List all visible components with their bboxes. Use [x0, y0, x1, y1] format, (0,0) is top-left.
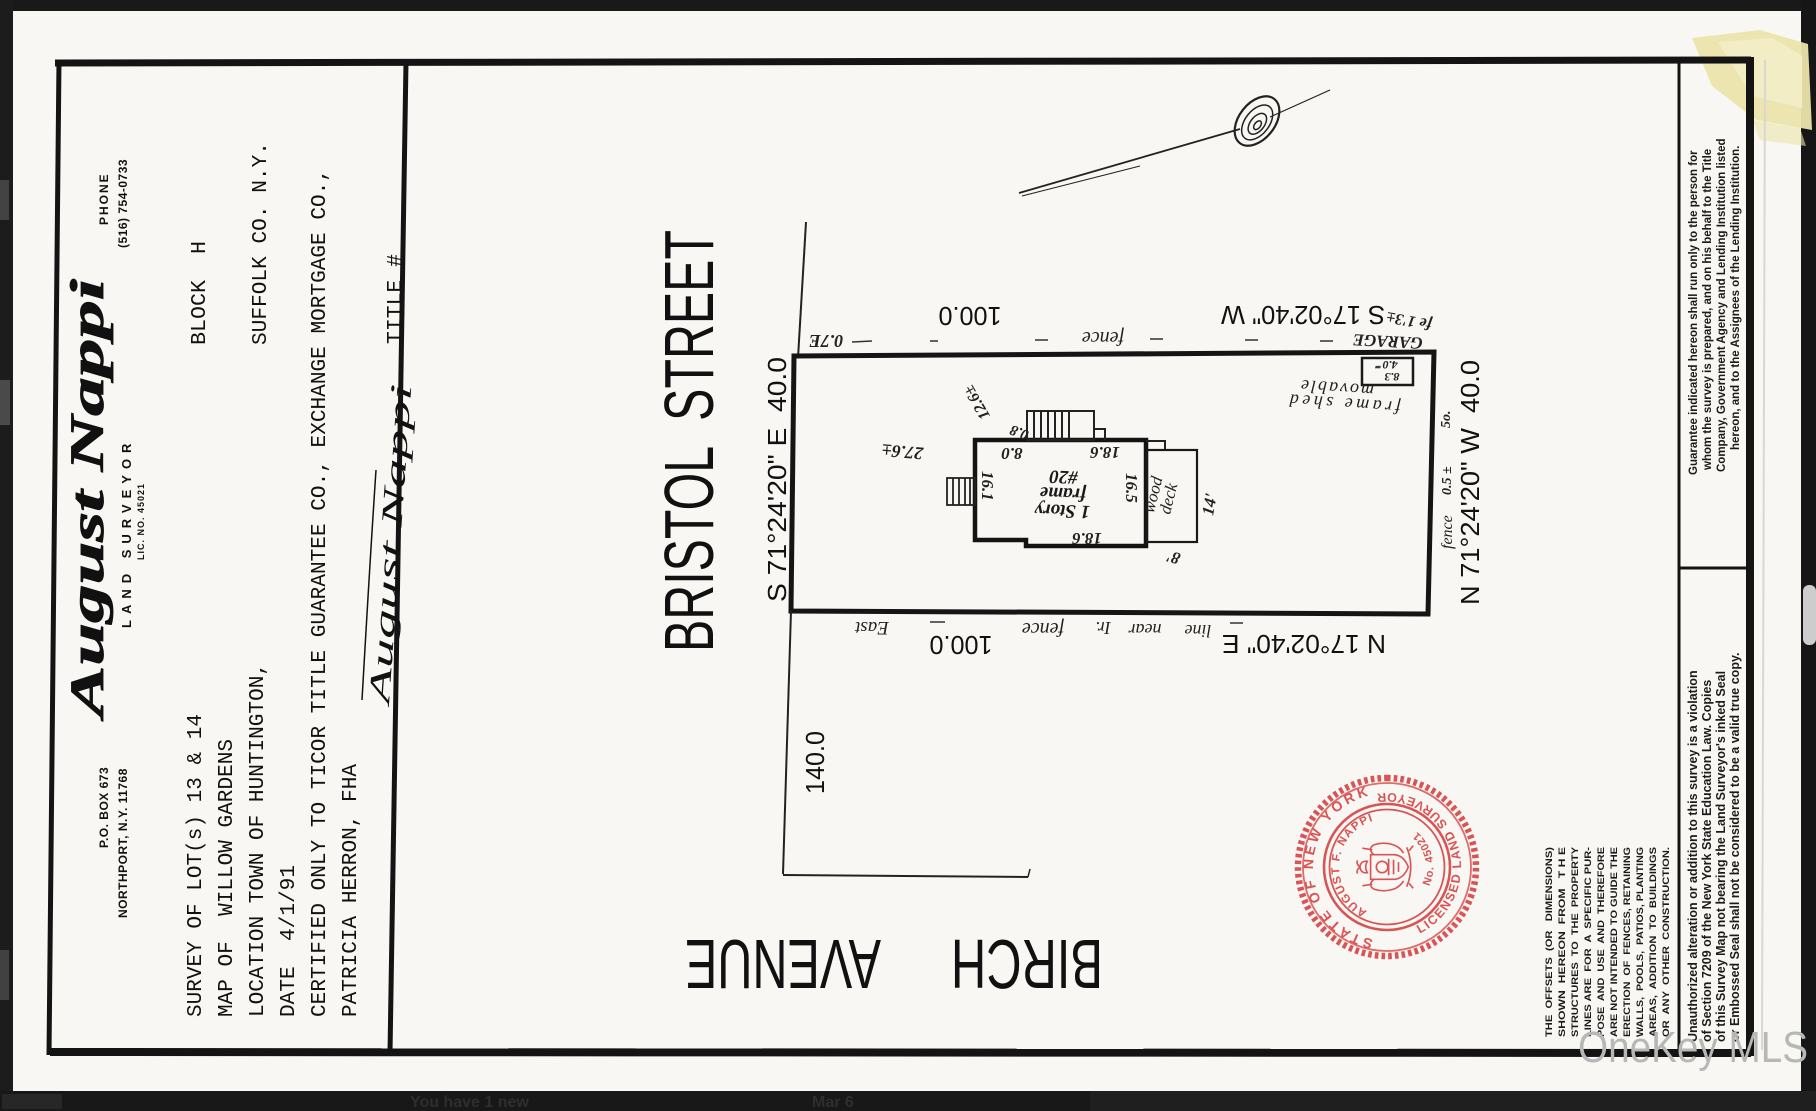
svg-text:SHOWN HEREON FROM T H E: SHOWN HEREON FROM T H E [1557, 847, 1567, 1037]
svg-text:GARAGE: GARAGE [1352, 330, 1423, 353]
svg-text:DATE 4/1/91: DATE 4/1/91 [277, 865, 301, 1017]
svg-text:NORTHPORT, N.Y. 11768: NORTHPORT, N.Y. 11768 [116, 768, 130, 918]
svg-text:0.7E: 0.7E [809, 331, 844, 351]
svg-text:P.O. BOX 673: P.O. BOX 673 [97, 767, 111, 848]
svg-text:Ir.: Ir. [1095, 618, 1112, 638]
svg-text:TITLE #: TITLE # [384, 254, 408, 344]
svg-text:WALLS, POOLS, PATIOS, PLANTI: WALLS, POOLS, PATIOS, PLANTING [1635, 847, 1645, 1037]
svg-text:4.0⁼: 4.0⁼ [1375, 358, 1399, 372]
svg-text:27.6±: 27.6± [881, 440, 925, 464]
svg-text:POSE AND USE AND THEREFORE: POSE AND USE AND THEREFORE [1596, 847, 1606, 1037]
svg-text:BIRCH: BIRCH [951, 925, 1103, 1003]
svg-text:PATRICIA HERRON, FHA: PATRICIA HERRON, FHA [339, 764, 363, 1017]
svg-text:fence: fence [1022, 618, 1064, 640]
svg-text:ARE NOT INTENDED TO GUIDE THE: ARE NOT INTENDED TO GUIDE THE [1609, 847, 1619, 1037]
svg-text:STRUCTURES TO THE PROPERTY: STRUCTURES TO THE PROPERTY [1570, 847, 1580, 1037]
svg-text:of Section 7209 of the New Yor: of Section 7209 of the New York State Ed… [1700, 680, 1714, 1042]
svg-text:BLOCK H: BLOCK H [188, 241, 212, 345]
svg-text:OneKey MLS: OneKey MLS [1578, 1023, 1808, 1072]
svg-text:ERECTION OF FENCES, RETAININ: ERECTION OF FENCES, RETAINING [1622, 847, 1632, 1037]
svg-text:18.6: 18.6 [1072, 529, 1102, 548]
svg-text:S 71°24'20" E 40.0: S 71°24'20" E 40.0 [762, 357, 792, 602]
svg-text:Company, Government Agency and: Company, Government Agency and Lending I… [1716, 138, 1728, 472]
svg-text:whom the survey is prepared, a: whom the survey is prepared, and on his … [1702, 149, 1714, 471]
svg-text:fence: fence [1439, 515, 1456, 549]
svg-text:SURVEY OF LOT(s) 13 & 14: SURVEY OF LOT(s) 13 & 14 [184, 714, 208, 1017]
svg-text:LIC. NO. 45021: LIC. NO. 45021 [136, 483, 146, 560]
svg-text:14': 14' [1198, 492, 1221, 517]
svg-text:LAND SURVEYOR: LAND SURVEYOR [119, 438, 134, 628]
svg-text:CERTIFIED ONLY TO TICOR TITLE: CERTIFIED ONLY TO TICOR TITLE GUARANTEE … [308, 169, 332, 1017]
svg-text:100.0: 100.0 [930, 630, 993, 660]
svg-text:August Nappi: August Nappi [61, 278, 114, 722]
svg-text:OR ANY OTHER CONSTRUCTION.: OR ANY OTHER CONSTRUCTION. [1661, 847, 1671, 1037]
svg-text:AVENUE: AVENUE [685, 925, 881, 1003]
svg-text:or Embossed Seal shall not be: or Embossed Seal shall not be considered… [1728, 653, 1742, 1042]
svg-text:line: line [1184, 621, 1211, 641]
svg-text:0.5 ±: 0.5 ± [1440, 466, 1455, 495]
svg-text:16.1: 16.1 [978, 471, 997, 501]
svg-text:THE OFFSETS (OR DIMENSIONS: THE OFFSETS (OR DIMENSIONS) [1544, 847, 1554, 1037]
svg-text:#20: #20 [1048, 466, 1079, 488]
svg-text:LINES ARE FOR A SPECIFIC PU: LINES ARE FOR A SPECIFIC PUR- [1583, 847, 1593, 1037]
svg-text:Mar 6: Mar 6 [812, 1094, 854, 1111]
svg-text:S 17°02'40" W: S 17°02'40" W [1221, 300, 1385, 330]
svg-text:Unauthorized alteration or add: Unauthorized alteration or addition to t… [1686, 670, 1700, 1042]
svg-text:SUFFOLK CO. N.Y.: SUFFOLK CO. N.Y. [249, 142, 273, 345]
svg-text:N 71°24'20" W 40.0: N 71°24'20" W 40.0 [1455, 360, 1485, 605]
svg-text:near: near [1128, 620, 1162, 640]
svg-text:East: East [854, 617, 890, 638]
svg-text:18.6: 18.6 [1090, 443, 1120, 462]
svg-text:fence: fence [1082, 327, 1124, 349]
svg-text:hereon, and to the Assignees o: hereon, and to the Assignees of the Lend… [1730, 146, 1742, 450]
svg-text:N 17°02'40" E: N 17°02'40" E [1222, 629, 1386, 659]
svg-text:100.0: 100.0 [939, 301, 1002, 331]
svg-text:AREAS, ADDITION TO BUILDING: AREAS, ADDITION TO BUILDINGS [1648, 847, 1658, 1037]
svg-text:8.0: 8.0 [1001, 444, 1023, 463]
svg-text:8.3: 8.3 [1385, 370, 1400, 384]
svg-text:16.5: 16.5 [1122, 473, 1141, 503]
svg-text:LOCATION TOWN OF HUNTINGTON,: LOCATION TOWN OF HUNTINGTON, [246, 663, 270, 1017]
svg-text:You have 1 new: You have 1 new [410, 1094, 529, 1111]
svg-text:BRISTOL STREET: BRISTOL STREET [650, 230, 728, 652]
svg-text:(516) 754-0733: (516) 754-0733 [116, 159, 130, 248]
svg-text:Guarantee indicated hereon sha: Guarantee indicated hereon shall run onl… [1688, 150, 1700, 475]
svg-text:140.0: 140.0 [800, 731, 830, 794]
svg-text:of this Survey Map not bearing: of this Survey Map not bearing the Land … [1714, 671, 1728, 1042]
svg-text:5o.: 5o. [1439, 411, 1454, 429]
svg-text:PHONE: PHONE [97, 172, 111, 225]
svg-text:MAP OF WILLOW GARDENS: MAP OF WILLOW GARDENS [215, 739, 239, 1017]
